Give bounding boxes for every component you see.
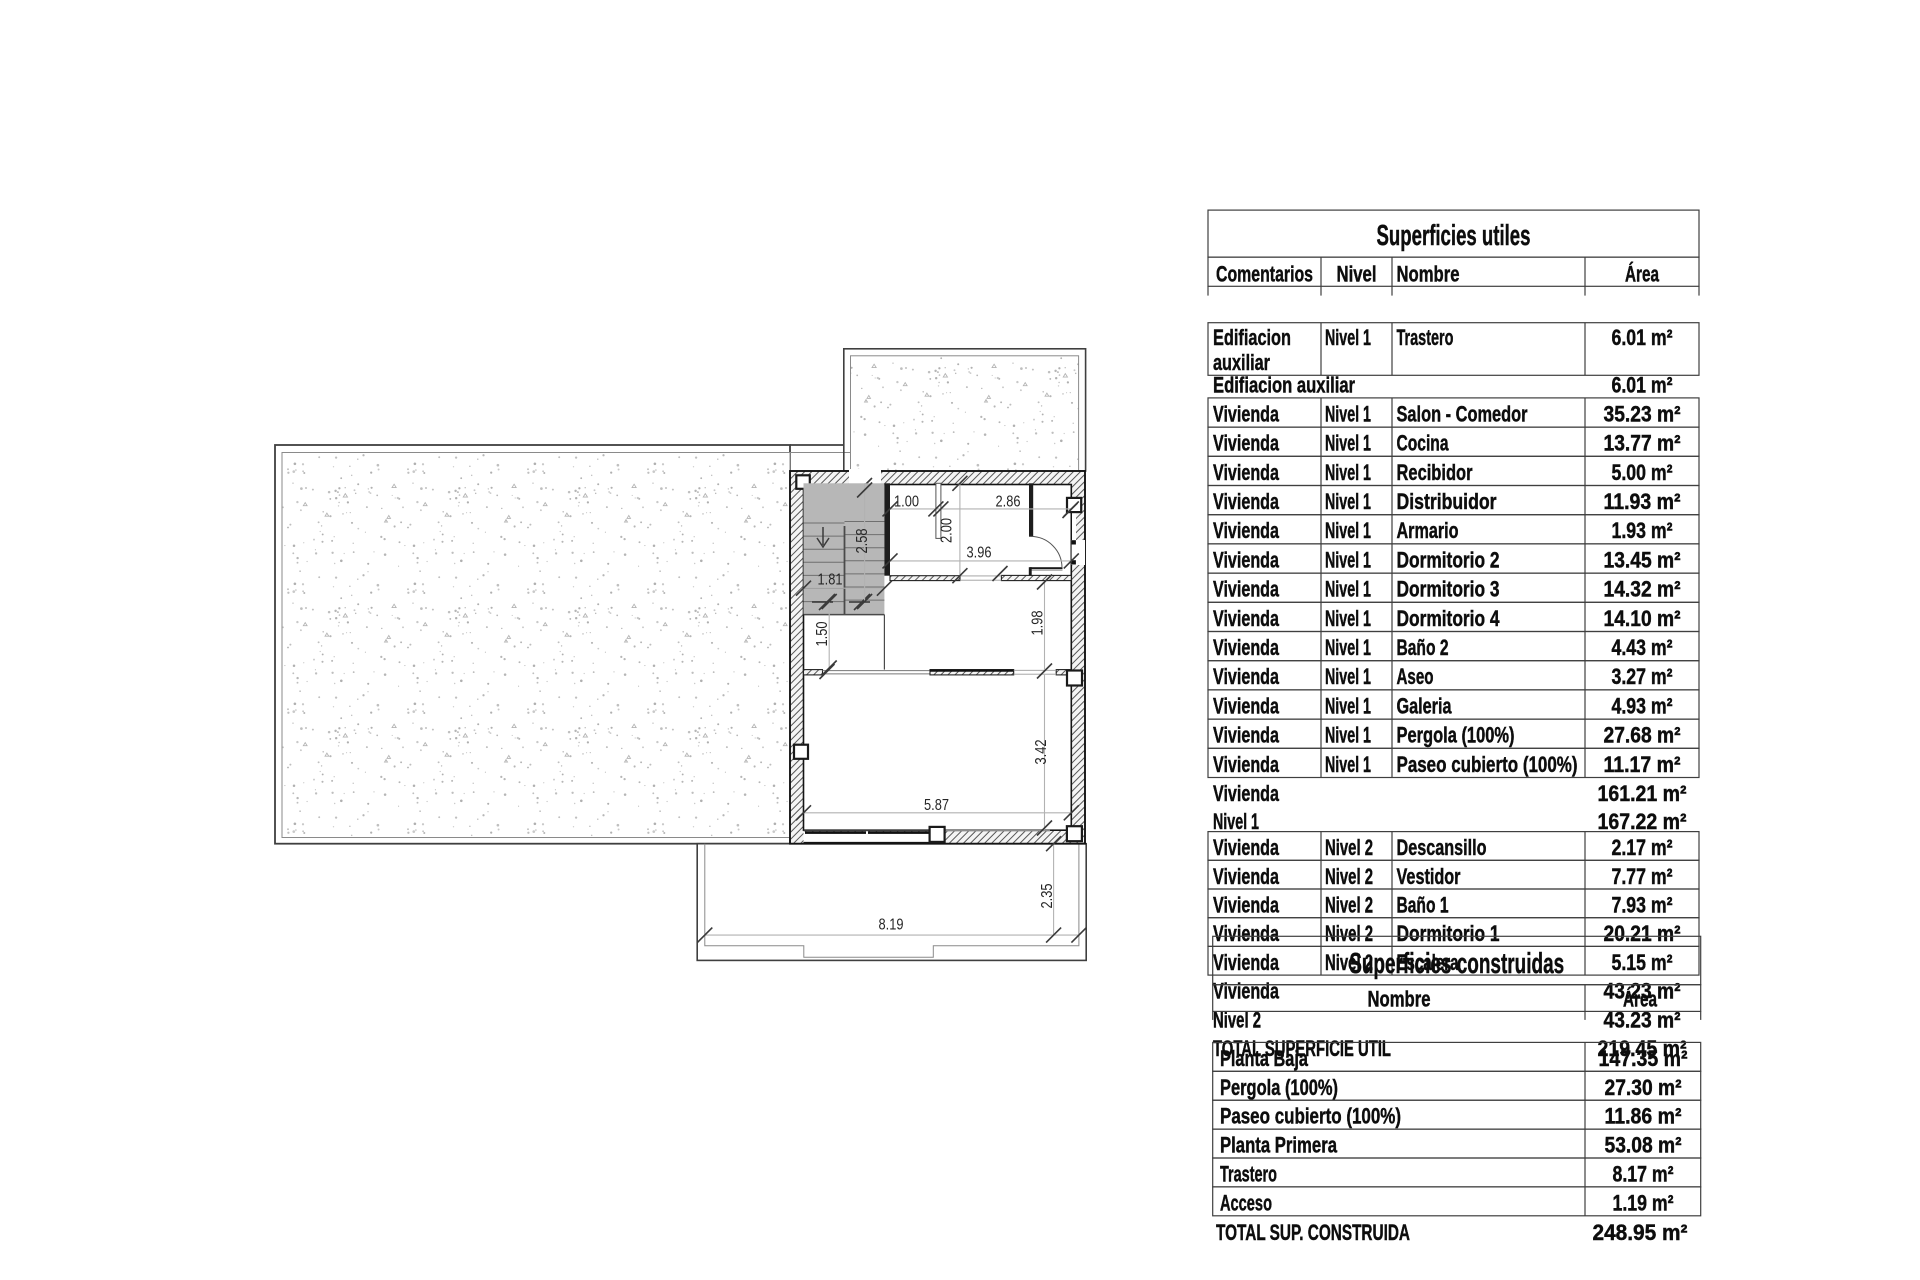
- svg-text:Nivel 2: Nivel 2: [1325, 893, 1373, 918]
- svg-text:Trastero: Trastero: [1397, 325, 1454, 350]
- svg-text:Nivel 1: Nivel 1: [1213, 809, 1259, 834]
- svg-text:Nivel 2: Nivel 2: [1325, 921, 1373, 946]
- svg-text:11.93 m²: 11.93 m²: [1604, 489, 1681, 514]
- svg-text:147.35 m²: 147.35 m²: [1599, 1046, 1688, 1071]
- svg-text:Vivienda: Vivienda: [1213, 547, 1280, 572]
- svg-text:5.00 m²: 5.00 m²: [1612, 460, 1673, 485]
- svg-text:Vivienda: Vivienda: [1213, 635, 1280, 660]
- svg-text:Vivienda: Vivienda: [1213, 723, 1280, 748]
- svg-text:Nivel 1: Nivel 1: [1325, 547, 1371, 572]
- svg-text:Dormitorio 3: Dormitorio 3: [1397, 577, 1500, 602]
- svg-text:6.01 m²: 6.01 m²: [1612, 373, 1673, 398]
- svg-text:2.35: 2.35: [1039, 884, 1056, 909]
- svg-text:27.68 m²: 27.68 m²: [1604, 723, 1681, 748]
- svg-text:Vivienda: Vivienda: [1213, 489, 1280, 514]
- svg-text:14.32 m²: 14.32 m²: [1604, 577, 1681, 602]
- svg-text:Vivienda: Vivienda: [1213, 518, 1280, 543]
- svg-text:Nivel 1: Nivel 1: [1325, 460, 1371, 485]
- svg-text:Vivienda: Vivienda: [1213, 401, 1280, 426]
- svg-text:167.22 m²: 167.22 m²: [1598, 809, 1687, 834]
- svg-text:1.93 m²: 1.93 m²: [1612, 518, 1673, 543]
- svg-text:TOTAL SUP. CONSTRUIDA: TOTAL SUP. CONSTRUIDA: [1216, 1220, 1410, 1245]
- svg-text:Vivienda: Vivienda: [1213, 979, 1280, 1004]
- svg-text:Paseo cubierto (100%): Paseo cubierto (100%): [1397, 752, 1578, 777]
- svg-text:Distribuidor: Distribuidor: [1397, 489, 1497, 514]
- svg-text:Comentarios: Comentarios: [1216, 261, 1313, 286]
- svg-text:Vivienda: Vivienda: [1213, 781, 1280, 806]
- svg-text:Vivienda: Vivienda: [1213, 577, 1280, 602]
- svg-text:Descansillo: Descansillo: [1397, 835, 1487, 860]
- svg-text:Vivienda: Vivienda: [1213, 921, 1280, 946]
- svg-text:Vivienda: Vivienda: [1213, 431, 1280, 456]
- svg-text:1.98: 1.98: [1030, 611, 1047, 636]
- svg-text:35.23 m²: 35.23 m²: [1604, 401, 1681, 426]
- svg-text:Armario: Armario: [1397, 518, 1459, 543]
- svg-text:Nivel 2: Nivel 2: [1325, 835, 1373, 860]
- svg-text:Baño 2: Baño 2: [1397, 635, 1449, 660]
- svg-text:Galeria: Galeria: [1397, 693, 1453, 718]
- svg-text:2.86: 2.86: [996, 494, 1021, 511]
- svg-text:161.21 m²: 161.21 m²: [1598, 781, 1687, 806]
- svg-text:Trastero: Trastero: [1220, 1162, 1277, 1187]
- svg-text:1.50: 1.50: [814, 621, 831, 646]
- svg-text:Pergola (100%): Pergola (100%): [1220, 1075, 1338, 1100]
- svg-text:Recibidor: Recibidor: [1397, 460, 1473, 485]
- svg-text:Vivienda: Vivienda: [1213, 606, 1280, 631]
- svg-text:11.17 m²: 11.17 m²: [1604, 752, 1681, 777]
- svg-text:5.15 m²: 5.15 m²: [1612, 950, 1673, 975]
- svg-text:Nivel 1: Nivel 1: [1325, 431, 1371, 456]
- svg-text:Nombre: Nombre: [1368, 987, 1431, 1012]
- svg-text:Nivel 1: Nivel 1: [1325, 489, 1371, 514]
- svg-text:Edifiacion: Edifiacion: [1213, 325, 1291, 350]
- svg-text:Pergola (100%): Pergola (100%): [1397, 723, 1515, 748]
- svg-text:7.93 m²: 7.93 m²: [1612, 893, 1673, 918]
- svg-text:Vestidor: Vestidor: [1397, 864, 1461, 889]
- svg-text:Superficies utiles: Superficies utiles: [1377, 220, 1531, 252]
- svg-text:13.77 m²: 13.77 m²: [1604, 431, 1681, 456]
- svg-text:53.08 m²: 53.08 m²: [1605, 1133, 1682, 1158]
- svg-text:Nivel 1: Nivel 1: [1325, 606, 1371, 631]
- svg-text:Vivienda: Vivienda: [1213, 950, 1280, 975]
- svg-text:Edifiacion auxiliar: Edifiacion auxiliar: [1213, 373, 1355, 398]
- svg-text:Nivel: Nivel: [1337, 261, 1377, 286]
- svg-text:Nivel 1: Nivel 1: [1325, 664, 1371, 689]
- svg-text:13.45 m²: 13.45 m²: [1604, 547, 1681, 572]
- svg-text:Nivel 1: Nivel 1: [1325, 518, 1371, 543]
- svg-text:27.30 m²: 27.30 m²: [1605, 1075, 1682, 1100]
- svg-text:Nivel 1: Nivel 1: [1325, 693, 1371, 718]
- svg-text:14.10 m²: 14.10 m²: [1604, 606, 1681, 631]
- svg-text:5.87: 5.87: [924, 797, 949, 814]
- svg-text:248.95 m²: 248.95 m²: [1593, 1220, 1688, 1245]
- svg-text:8.17 m²: 8.17 m²: [1613, 1162, 1674, 1187]
- svg-text:Nivel 1: Nivel 1: [1325, 577, 1371, 602]
- svg-text:Baño 1: Baño 1: [1397, 893, 1449, 918]
- svg-text:3.96: 3.96: [967, 545, 992, 562]
- svg-text:Planta Primera: Planta Primera: [1220, 1133, 1338, 1158]
- svg-text:Vivienda: Vivienda: [1213, 664, 1280, 689]
- svg-text:3.42: 3.42: [1033, 740, 1050, 765]
- svg-text:1.81: 1.81: [818, 572, 843, 589]
- svg-text:Salon - Comedor: Salon - Comedor: [1397, 401, 1528, 426]
- svg-text:2.58: 2.58: [854, 529, 871, 554]
- svg-text:Vivienda: Vivienda: [1213, 835, 1280, 860]
- svg-text:Nivel 2: Nivel 2: [1325, 864, 1373, 889]
- svg-text:Cocina: Cocina: [1397, 431, 1450, 456]
- svg-text:2.17 m²: 2.17 m²: [1612, 835, 1673, 860]
- svg-text:Área: Área: [1625, 261, 1660, 286]
- svg-text:4.93 m²: 4.93 m²: [1612, 693, 1673, 718]
- svg-text:20.21 m²: 20.21 m²: [1604, 921, 1681, 946]
- svg-text:Planta Baja: Planta Baja: [1220, 1046, 1309, 1071]
- svg-text:Dormitorio 4: Dormitorio 4: [1397, 606, 1501, 631]
- svg-text:auxiliar: auxiliar: [1213, 350, 1270, 375]
- svg-text:3.27 m²: 3.27 m²: [1612, 664, 1673, 689]
- svg-text:Dormitorio 1: Dormitorio 1: [1397, 921, 1500, 946]
- svg-text:2.00: 2.00: [939, 518, 956, 543]
- svg-text:Vivienda: Vivienda: [1213, 864, 1280, 889]
- svg-text:Superficies construidas: Superficies construidas: [1349, 948, 1564, 980]
- svg-text:6.01 m²: 6.01 m²: [1612, 325, 1673, 350]
- svg-text:Nivel 1: Nivel 1: [1325, 401, 1371, 426]
- svg-text:Área: Área: [1623, 987, 1658, 1012]
- svg-text:Nivel 1: Nivel 1: [1325, 723, 1371, 748]
- svg-text:Nivel 1: Nivel 1: [1325, 325, 1371, 350]
- svg-text:Acceso: Acceso: [1220, 1190, 1272, 1215]
- svg-text:Vivienda: Vivienda: [1213, 752, 1280, 777]
- svg-text:Vivienda: Vivienda: [1213, 693, 1280, 718]
- svg-text:8.19: 8.19: [879, 917, 904, 934]
- svg-text:Nivel 1: Nivel 1: [1325, 752, 1371, 777]
- svg-text:11.86 m²: 11.86 m²: [1605, 1104, 1682, 1129]
- svg-text:Paseo cubierto (100%): Paseo cubierto (100%): [1220, 1104, 1401, 1129]
- svg-text:Vivienda: Vivienda: [1213, 893, 1280, 918]
- svg-text:1.00: 1.00: [894, 494, 919, 511]
- svg-text:1.19 m²: 1.19 m²: [1613, 1190, 1674, 1215]
- svg-text:Dormitorio 2: Dormitorio 2: [1397, 547, 1500, 572]
- svg-text:7.77 m²: 7.77 m²: [1612, 864, 1673, 889]
- svg-text:Vivienda: Vivienda: [1213, 460, 1280, 485]
- svg-text:Nombre: Nombre: [1397, 261, 1460, 286]
- svg-text:4.43 m²: 4.43 m²: [1612, 635, 1673, 660]
- svg-text:Aseo: Aseo: [1397, 664, 1434, 689]
- svg-text:Nivel 1: Nivel 1: [1325, 635, 1371, 660]
